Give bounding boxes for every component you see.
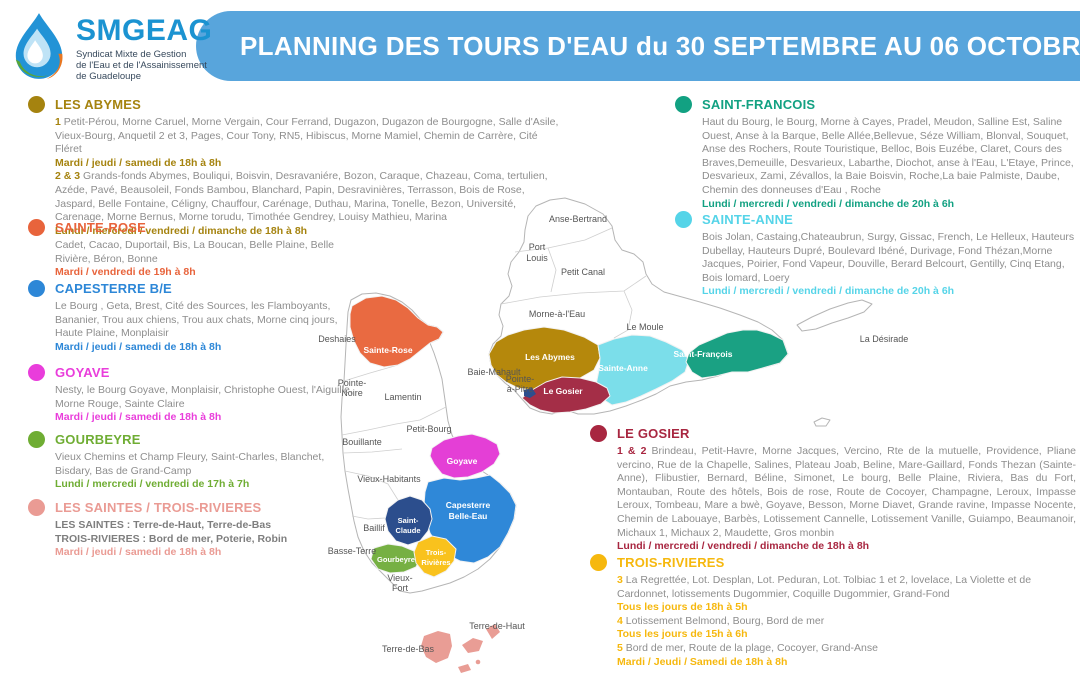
areas-prefix: 3 xyxy=(617,574,626,586)
map-label-morne-a-leau: Morne-à-l'Eau xyxy=(529,309,585,319)
section-title: GOURBEYRE xyxy=(55,431,358,448)
section-title: LES SAINTES / TROIS-RIVIERES xyxy=(55,499,390,516)
areas-line: Vieux Chemins et Champ Fleury, Saint-Cha… xyxy=(55,451,358,478)
areas-line: Nesty, le Bourg Goyave, Monplaisir, Chri… xyxy=(55,384,370,411)
planning-poster: SMGEAG Syndicat Mixte de Gestion de l'Ea… xyxy=(0,0,1080,675)
areas-prefix: 1 xyxy=(55,116,64,128)
section-goyave: GOYAVE Nesty, le Bourg Goyave, Monplaisi… xyxy=(28,364,370,425)
map-label-lamentin: Lamentin xyxy=(384,392,421,402)
section-body: Haut du Bourg, le Bourg, Morne à Cayes, … xyxy=(702,116,1077,211)
areas-line: 5 Bord de mer, Route de la plage, Cocoye… xyxy=(617,642,1076,656)
map-region-label-le-gosier: Le Gosier xyxy=(543,386,583,396)
map-label-le-moule: Le Moule xyxy=(626,322,663,332)
map-island-la-desirade xyxy=(797,300,872,331)
section-title: SAINTE-ANNE xyxy=(702,211,1077,228)
section-title: LE GOSIER xyxy=(617,425,1076,442)
map-label-petit-canal: Petit Canal xyxy=(561,267,605,277)
areas-line: 1 Petit-Pérou, Morne Caruel, Morne Verga… xyxy=(55,116,560,157)
map-label-vieux-fort: Vieux- xyxy=(387,573,412,583)
map-region-label-trois-rivieres: Rivières xyxy=(421,558,450,567)
water-drop-icon xyxy=(10,10,68,82)
section-le-gosier: LE GOSIER 1 & 2 Brindeau, Petit-Havre, M… xyxy=(590,425,1076,554)
section-body: Vieux Chemins et Champ Fleury, Saint-Cha… xyxy=(55,451,358,492)
section-color-dot xyxy=(28,431,45,448)
map-region-label-saint-claude: Saint- xyxy=(398,516,419,525)
section-sainte-anne: SAINTE-ANNE Bois Jolan, Castaing,Chateau… xyxy=(675,211,1077,299)
section-color-dot xyxy=(675,211,692,228)
section-body: 3 La Regrettée, Lot. Desplan, Lot. Pedur… xyxy=(617,574,1076,669)
logo-name: SMGEAG xyxy=(76,16,212,46)
map-islet xyxy=(458,664,471,673)
section-color-dot xyxy=(590,425,607,442)
areas-line: 3 La Regrettée, Lot. Desplan, Lot. Pedur… xyxy=(617,574,1076,601)
areas-prefix: 4 xyxy=(617,615,626,627)
map-islet xyxy=(476,660,481,665)
map-label-terre-de-haut: Terre-de-Haut xyxy=(469,621,525,631)
title-banner: PLANNING DES TOURS D'EAU du 30 SEPTEMBRE… xyxy=(196,11,1080,81)
areas-line: Bois Jolan, Castaing,Chateaubrun, Surgy,… xyxy=(702,231,1077,285)
map-region-label-saint-claude: Claude xyxy=(395,526,420,535)
areas-line: Le Bourg , Geta, Brest, Cité des Sources… xyxy=(55,300,358,341)
section-les-abymes: LES ABYMES 1 Petit-Pérou, Morne Caruel, … xyxy=(28,96,560,238)
section-title: LES ABYMES xyxy=(55,96,560,113)
section-title: TROIS-RIVIERES xyxy=(617,554,1076,571)
section-body: Nesty, le Bourg Goyave, Monplaisir, Chri… xyxy=(55,384,370,425)
section-color-dot xyxy=(28,364,45,381)
schedule-line: Mardi / Jeudi / Samedi de 18h à 8h xyxy=(617,656,1076,670)
schedule-line: Lundi / mercredi / vendredi / dimanche d… xyxy=(702,285,1077,299)
logo-subtitle: Syndicat Mixte de Gestion de l'Eau et de… xyxy=(76,49,212,82)
page-title: PLANNING DES TOURS D'EAU du 30 SEPTEMBRE… xyxy=(196,31,1080,62)
section-saint-francois: SAINT-FRANCOIS Haut du Bourg, le Bourg, … xyxy=(675,96,1077,211)
map-label-vieux-fort: Fort xyxy=(392,583,409,593)
map-island-terre-de-haut xyxy=(462,638,483,653)
map-region-label-goyave: Goyave xyxy=(447,456,478,466)
map-region-label-capesterre: Capesterre xyxy=(446,500,491,510)
section-color-dot xyxy=(675,96,692,113)
map-label-pointe-a-pitre: Pointe- xyxy=(506,374,535,384)
map-region-label-les-abymes: Les Abymes xyxy=(525,352,575,362)
areas-line: 4 Lotissement Belmond, Bourg, Bord de me… xyxy=(617,615,1076,629)
map-label-port-louis: Louis xyxy=(526,253,548,263)
areas-line: TROIS-RIVIERES : Bord de mer, Poterie, R… xyxy=(55,533,390,547)
map-label-vieux-habitants: Vieux-Habitants xyxy=(357,474,421,484)
section-gourbeyre: GOURBEYRE Vieux Chemins et Champ Fleury,… xyxy=(28,431,358,492)
section-color-dot xyxy=(28,219,45,236)
section-title: CAPESTERRE B/E xyxy=(55,280,358,297)
section-title: SAINTE-ROSE xyxy=(55,219,358,236)
areas-prefix: 2 & 3 xyxy=(55,170,83,182)
section-color-dot xyxy=(28,280,45,297)
section-color-dot xyxy=(28,96,45,113)
section-title: SAINT-FRANCOIS xyxy=(702,96,1077,113)
schedule-line: Mardi / jeudi / samedi de 18h à 8h xyxy=(55,341,358,355)
areas-line: Cadet, Cacao, Duportail, Bis, La Boucan,… xyxy=(55,239,358,266)
schedule-line: Lundi / mercredi / vendredi de 17h à 7h xyxy=(55,478,358,492)
schedule-line: Mardi / jeudi / samedi de 18h à 8h xyxy=(55,157,560,171)
map-region-label-trois-rivieres: Trois- xyxy=(426,548,447,557)
areas-line: 1 & 2 Brindeau, Petit-Havre, Morne Jacqu… xyxy=(617,445,1076,540)
schedule-line: Tous les jours de 18h à 5h xyxy=(617,601,1076,615)
schedule-line: Lundi / mercredi / vendredi / dimanche d… xyxy=(702,198,1077,212)
areas-line: Haut du Bourg, le Bourg, Morne à Cayes, … xyxy=(702,116,1077,198)
schedule-line: Mardi / jeudi / samedi de 18h à 8h xyxy=(55,411,370,425)
map-label-port-louis: Port xyxy=(529,242,546,252)
schedule-line: Mardi / vendredi de 19h à 8h xyxy=(55,266,358,280)
section-body: Bois Jolan, Castaing,Chateaubrun, Surgy,… xyxy=(702,231,1077,299)
map-label-la-desirade: La Désirade xyxy=(860,334,909,344)
section-body: Le Bourg , Geta, Brest, Cité des Sources… xyxy=(55,300,358,354)
schedule-line: Tous les jours de 15h à 6h xyxy=(617,628,1076,642)
map-region-label-saint-francois: Saint-François xyxy=(673,349,732,359)
map-region-label-capesterre: Belle-Eau xyxy=(449,511,488,521)
map-label-terre-de-bas: Terre-de-Bas xyxy=(382,644,435,654)
schedule-line: Mardi / jeudi / samedi de 18h à 8h xyxy=(55,546,390,560)
map-region-label-sainte-anne: Sainte-Anne xyxy=(598,363,648,373)
section-sainte-rose: SAINTE-ROSE Cadet, Cacao, Duportail, Bis… xyxy=(28,219,358,280)
section-les-saintes-trois-rivieres: LES SAINTES / TROIS-RIVIERES LES SAINTES… xyxy=(28,499,390,560)
section-body: LES SAINTES : Terre-de-Haut, Terre-de-Ba… xyxy=(55,519,390,560)
section-color-dot xyxy=(590,554,607,571)
section-title: GOYAVE xyxy=(55,364,370,381)
areas-prefix: 5 xyxy=(617,642,626,654)
section-color-dot xyxy=(28,499,45,516)
section-capesterre-be: CAPESTERRE B/E Le Bourg , Geta, Brest, C… xyxy=(28,280,358,354)
smgeag-logo: SMGEAG Syndicat Mixte de Gestion de l'Ea… xyxy=(10,10,212,82)
schedule-line: Lundi / mercredi / vendredi / dimanche d… xyxy=(617,540,1076,554)
areas-line: LES SAINTES : Terre-de-Haut, Terre-de-Ba… xyxy=(55,519,390,533)
map-label-petit-bourg: Petit-Bourg xyxy=(406,424,451,434)
areas-line: 2 & 3 Grands-fonds Abymes, Bouliqui, Boi… xyxy=(55,170,560,224)
section-trois-rivieres: TROIS-RIVIERES 3 La Regrettée, Lot. Desp… xyxy=(590,554,1076,669)
section-body: Cadet, Cacao, Duportail, Bis, La Boucan,… xyxy=(55,239,358,280)
map-region-label-sainte-rose: Sainte-Rose xyxy=(363,345,412,355)
section-body: 1 & 2 Brindeau, Petit-Havre, Morne Jacqu… xyxy=(617,445,1076,554)
map-label-pointe-a-pitre: à-Pitre xyxy=(507,384,534,394)
areas-prefix: 1 & 2 xyxy=(617,445,652,457)
